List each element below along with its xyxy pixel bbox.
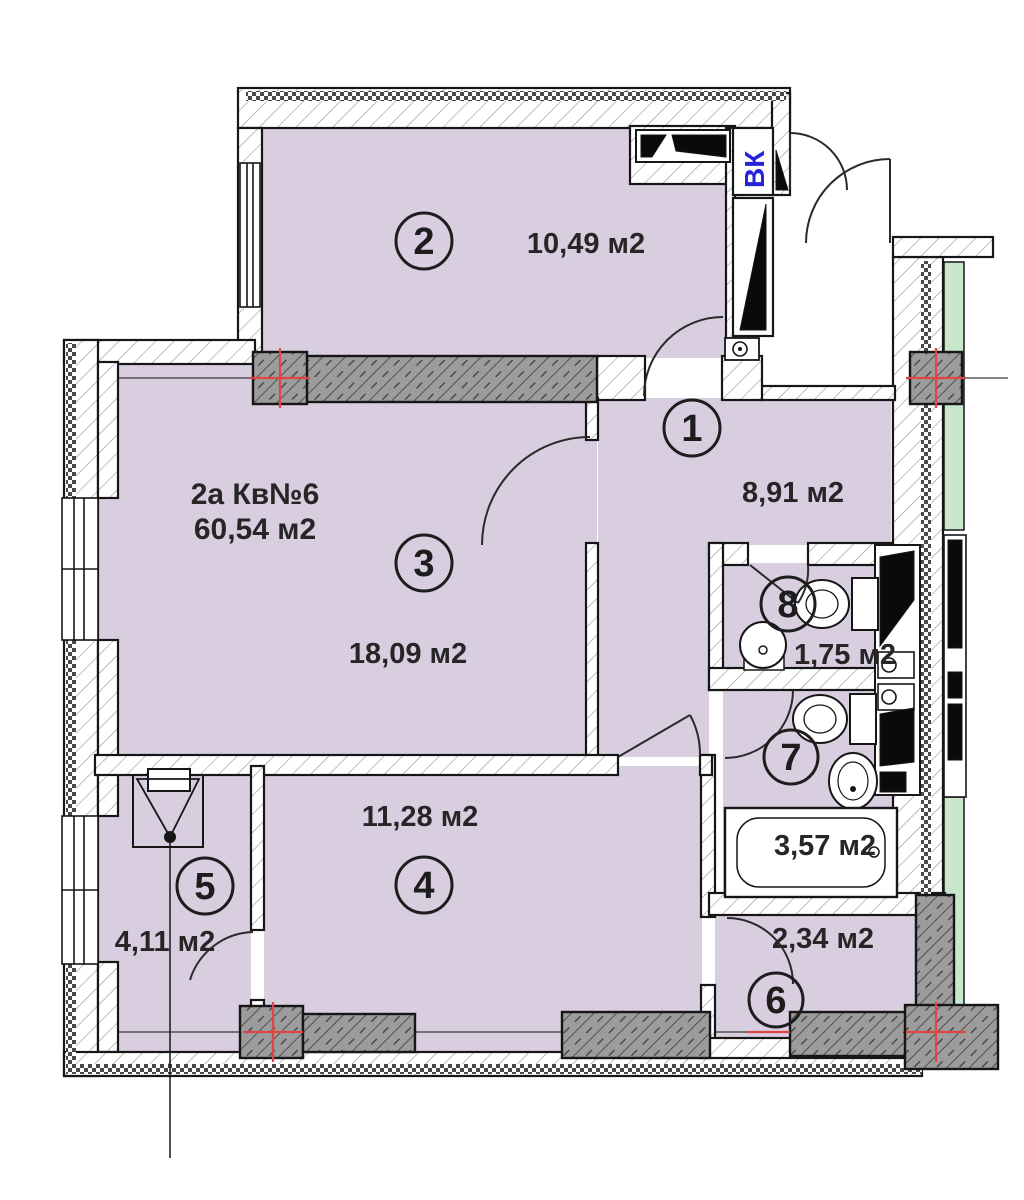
room-8-number: 8 [777,584,798,626]
apartment-name-label: 2а Кв№6 [191,478,320,511]
room-5-floor [96,766,251,1052]
room-5-number: 5 [194,866,215,908]
room-1-number: 1 [681,408,702,450]
room-7-area-label: 3,57 м2 [774,830,876,862]
room-4-number: 4 [413,865,434,907]
window-room3 [62,498,98,640]
room-6-area-label: 2,34 м2 [772,923,874,955]
room-4-floor [264,766,702,1052]
room-5-area-label: 4,11 м2 [115,926,215,958]
window-room2 [240,163,260,307]
sink-icon [829,753,877,809]
vk-shaft-label: ВК [739,150,770,188]
room-1-area-label: 8,91 м2 [742,477,844,509]
room-7-number: 7 [780,737,801,779]
bearing-wall-band [305,356,597,402]
room-4-area-label: 11,28 м2 [362,801,479,833]
column-bottom-right [905,1005,998,1069]
toilet-icon [793,694,876,744]
room-3-floor [98,362,597,765]
room-2-area-label: 10,49 м2 [527,228,645,260]
room-8-area-label: 1,75 м2 [794,639,896,671]
floor-plan: 2а Кв№6 60,54 м2 ВК 1 2 3 4 5 6 7 8 8,91… [0,0,1024,1200]
room-3-area-label: 18,09 м2 [349,638,467,670]
apartment-total-area-label: 60,54 м2 [194,513,316,546]
window-room5 [62,816,98,964]
room-3-number: 3 [413,543,434,585]
room-2-number: 2 [413,221,434,263]
room-6-number: 6 [765,980,786,1022]
